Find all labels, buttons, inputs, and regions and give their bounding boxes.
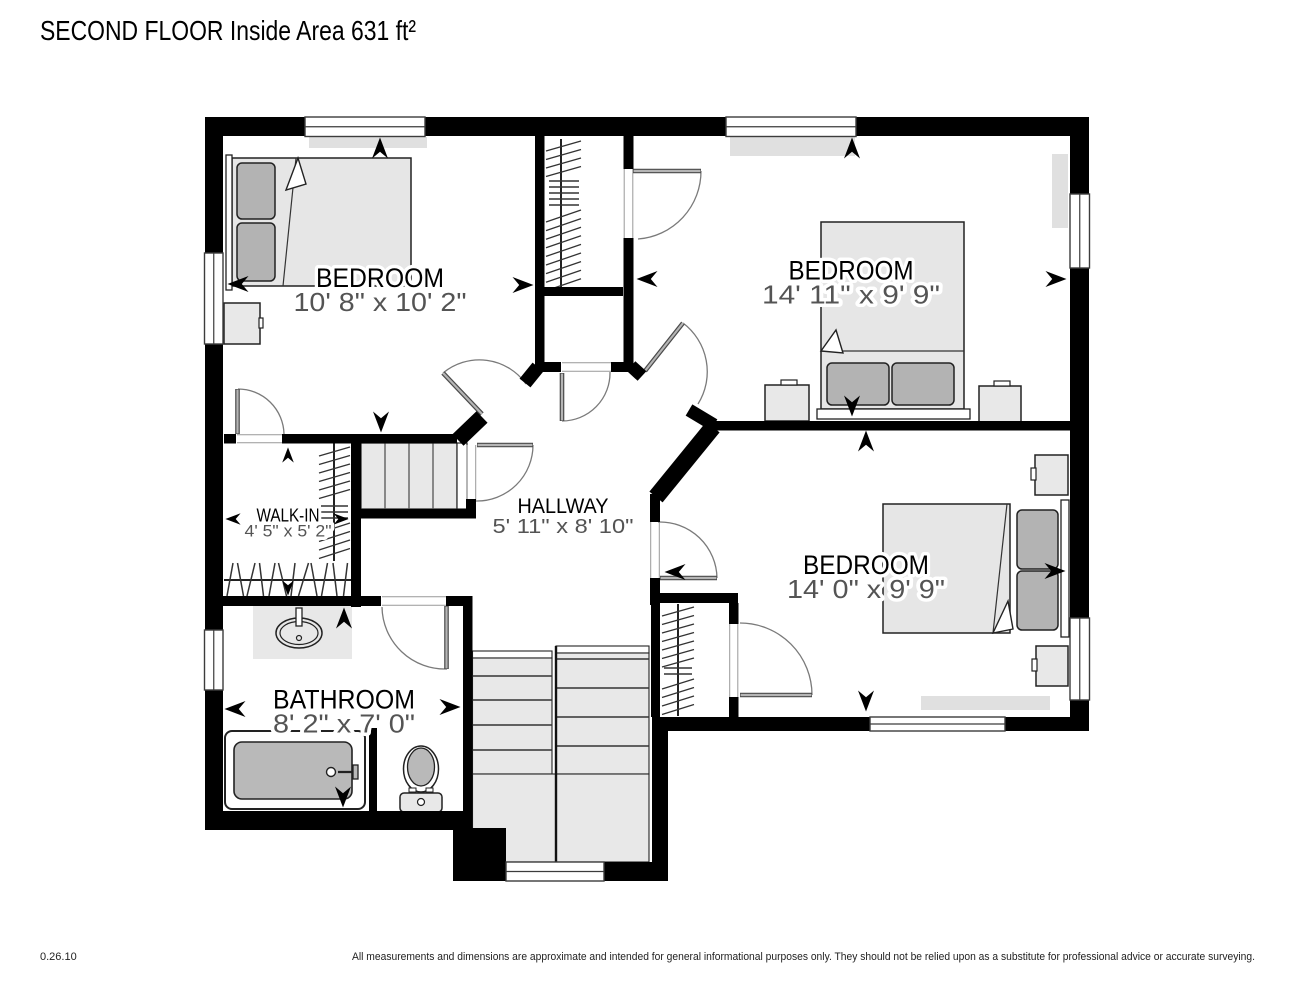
- svg-text:14' 11" x 9' 9": 14' 11" x 9' 9": [762, 280, 940, 310]
- svg-text:8' 2" x 7' 0": 8' 2" x 7' 0": [273, 709, 415, 739]
- svg-text:14' 0" x 9' 9": 14' 0" x 9' 9": [787, 574, 945, 604]
- svg-text:All measurements and dimension: All measurements and dimensions are appr…: [352, 951, 1255, 963]
- svg-text:0.26.10: 0.26.10: [40, 951, 77, 963]
- svg-text:10' 8" x 10' 2": 10' 8" x 10' 2": [294, 287, 467, 317]
- svg-text:SECOND FLOOR Inside Area 631 f: SECOND FLOOR Inside Area 631 ft²: [40, 15, 416, 46]
- svg-text:HALLWAY: HALLWAY: [518, 495, 609, 518]
- svg-text:5' 11" x 8' 10": 5' 11" x 8' 10": [493, 516, 634, 538]
- svg-text:4' 5" x 5' 2": 4' 5" x 5' 2": [245, 523, 332, 541]
